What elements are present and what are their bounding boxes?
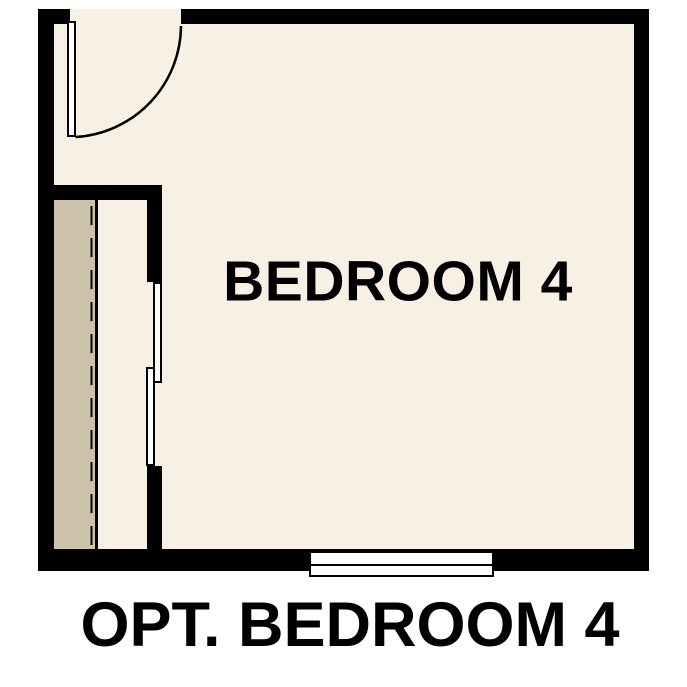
plan-caption: OPT. BEDROOM 4 (80, 589, 619, 661)
floor-plan-canvas: BEDROOM 4 OPT. BEDROOM 4 (0, 0, 687, 687)
plan-line-overlay (0, 0, 687, 687)
window (309, 551, 494, 577)
window-divider-line (311, 564, 492, 566)
room-label: BEDROOM 4 (223, 248, 573, 314)
door-swing-arc-icon (76, 26, 182, 137)
